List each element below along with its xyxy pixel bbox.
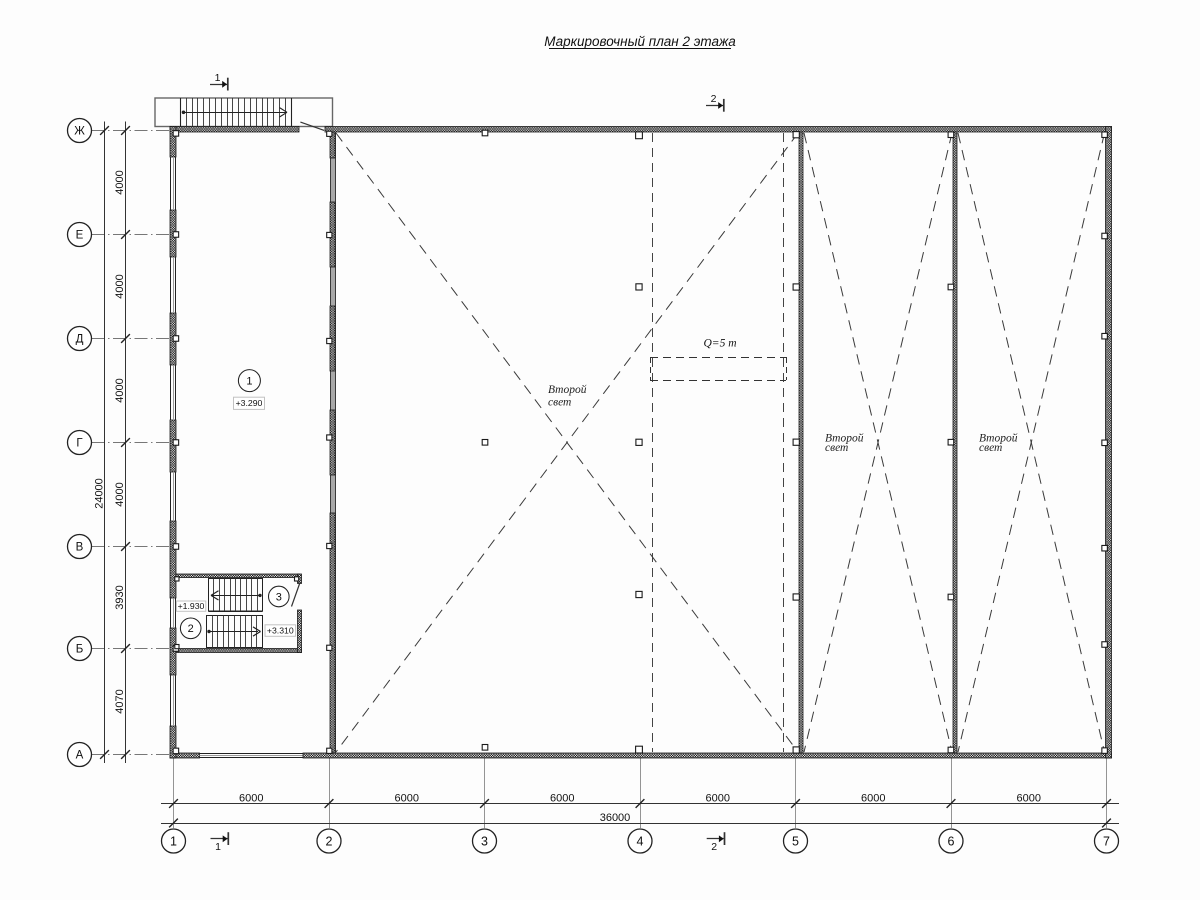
svg-text:36000: 36000 — [600, 812, 631, 824]
svg-text:1: 1 — [215, 841, 221, 853]
svg-text:6000: 6000 — [395, 792, 419, 804]
svg-text:6000: 6000 — [861, 792, 885, 804]
svg-text:4000: 4000 — [114, 274, 126, 298]
svg-text:6: 6 — [948, 834, 955, 848]
svg-text:свет: свет — [548, 397, 571, 409]
svg-text:Е: Е — [76, 230, 84, 242]
svg-text:свет: свет — [825, 442, 848, 454]
svg-text:4000: 4000 — [114, 482, 126, 506]
svg-text:Маркировочный план 2 этажа: Маркировочный план 2 этажа — [544, 34, 736, 49]
svg-text:5: 5 — [792, 834, 799, 848]
svg-text:4000: 4000 — [114, 170, 126, 194]
svg-text:3: 3 — [276, 591, 282, 603]
svg-text:1: 1 — [246, 375, 252, 387]
svg-text:1: 1 — [215, 72, 221, 84]
svg-text:2: 2 — [326, 834, 333, 848]
svg-text:4070: 4070 — [114, 689, 126, 713]
svg-text:В: В — [76, 542, 84, 554]
svg-text:Ж: Ж — [74, 126, 85, 138]
svg-text:Q=5 т: Q=5 т — [704, 338, 737, 350]
svg-text:7: 7 — [1103, 834, 1110, 848]
svg-text:+1.930: +1.930 — [178, 601, 205, 611]
svg-text:6000: 6000 — [706, 792, 730, 804]
svg-text:2: 2 — [711, 93, 717, 105]
svg-text:Д: Д — [76, 334, 84, 346]
svg-text:4000: 4000 — [114, 378, 126, 402]
svg-text:2: 2 — [188, 623, 194, 635]
svg-text:24000: 24000 — [94, 478, 106, 509]
svg-text:Г: Г — [76, 438, 83, 450]
svg-text:3: 3 — [481, 834, 488, 848]
svg-text:6000: 6000 — [550, 792, 574, 804]
svg-text:А: А — [76, 750, 84, 762]
svg-text:+3.310: +3.310 — [267, 625, 294, 635]
svg-text:+3.290: +3.290 — [236, 398, 263, 408]
svg-text:4: 4 — [637, 834, 644, 848]
svg-text:6000: 6000 — [1017, 792, 1041, 804]
svg-text:3930: 3930 — [114, 585, 126, 609]
svg-text:6000: 6000 — [239, 792, 263, 804]
svg-text:свет: свет — [979, 442, 1002, 454]
svg-text:1: 1 — [170, 834, 177, 848]
svg-text:Второй: Второй — [548, 383, 587, 396]
svg-text:2: 2 — [711, 841, 717, 853]
svg-text:Б: Б — [76, 644, 84, 656]
